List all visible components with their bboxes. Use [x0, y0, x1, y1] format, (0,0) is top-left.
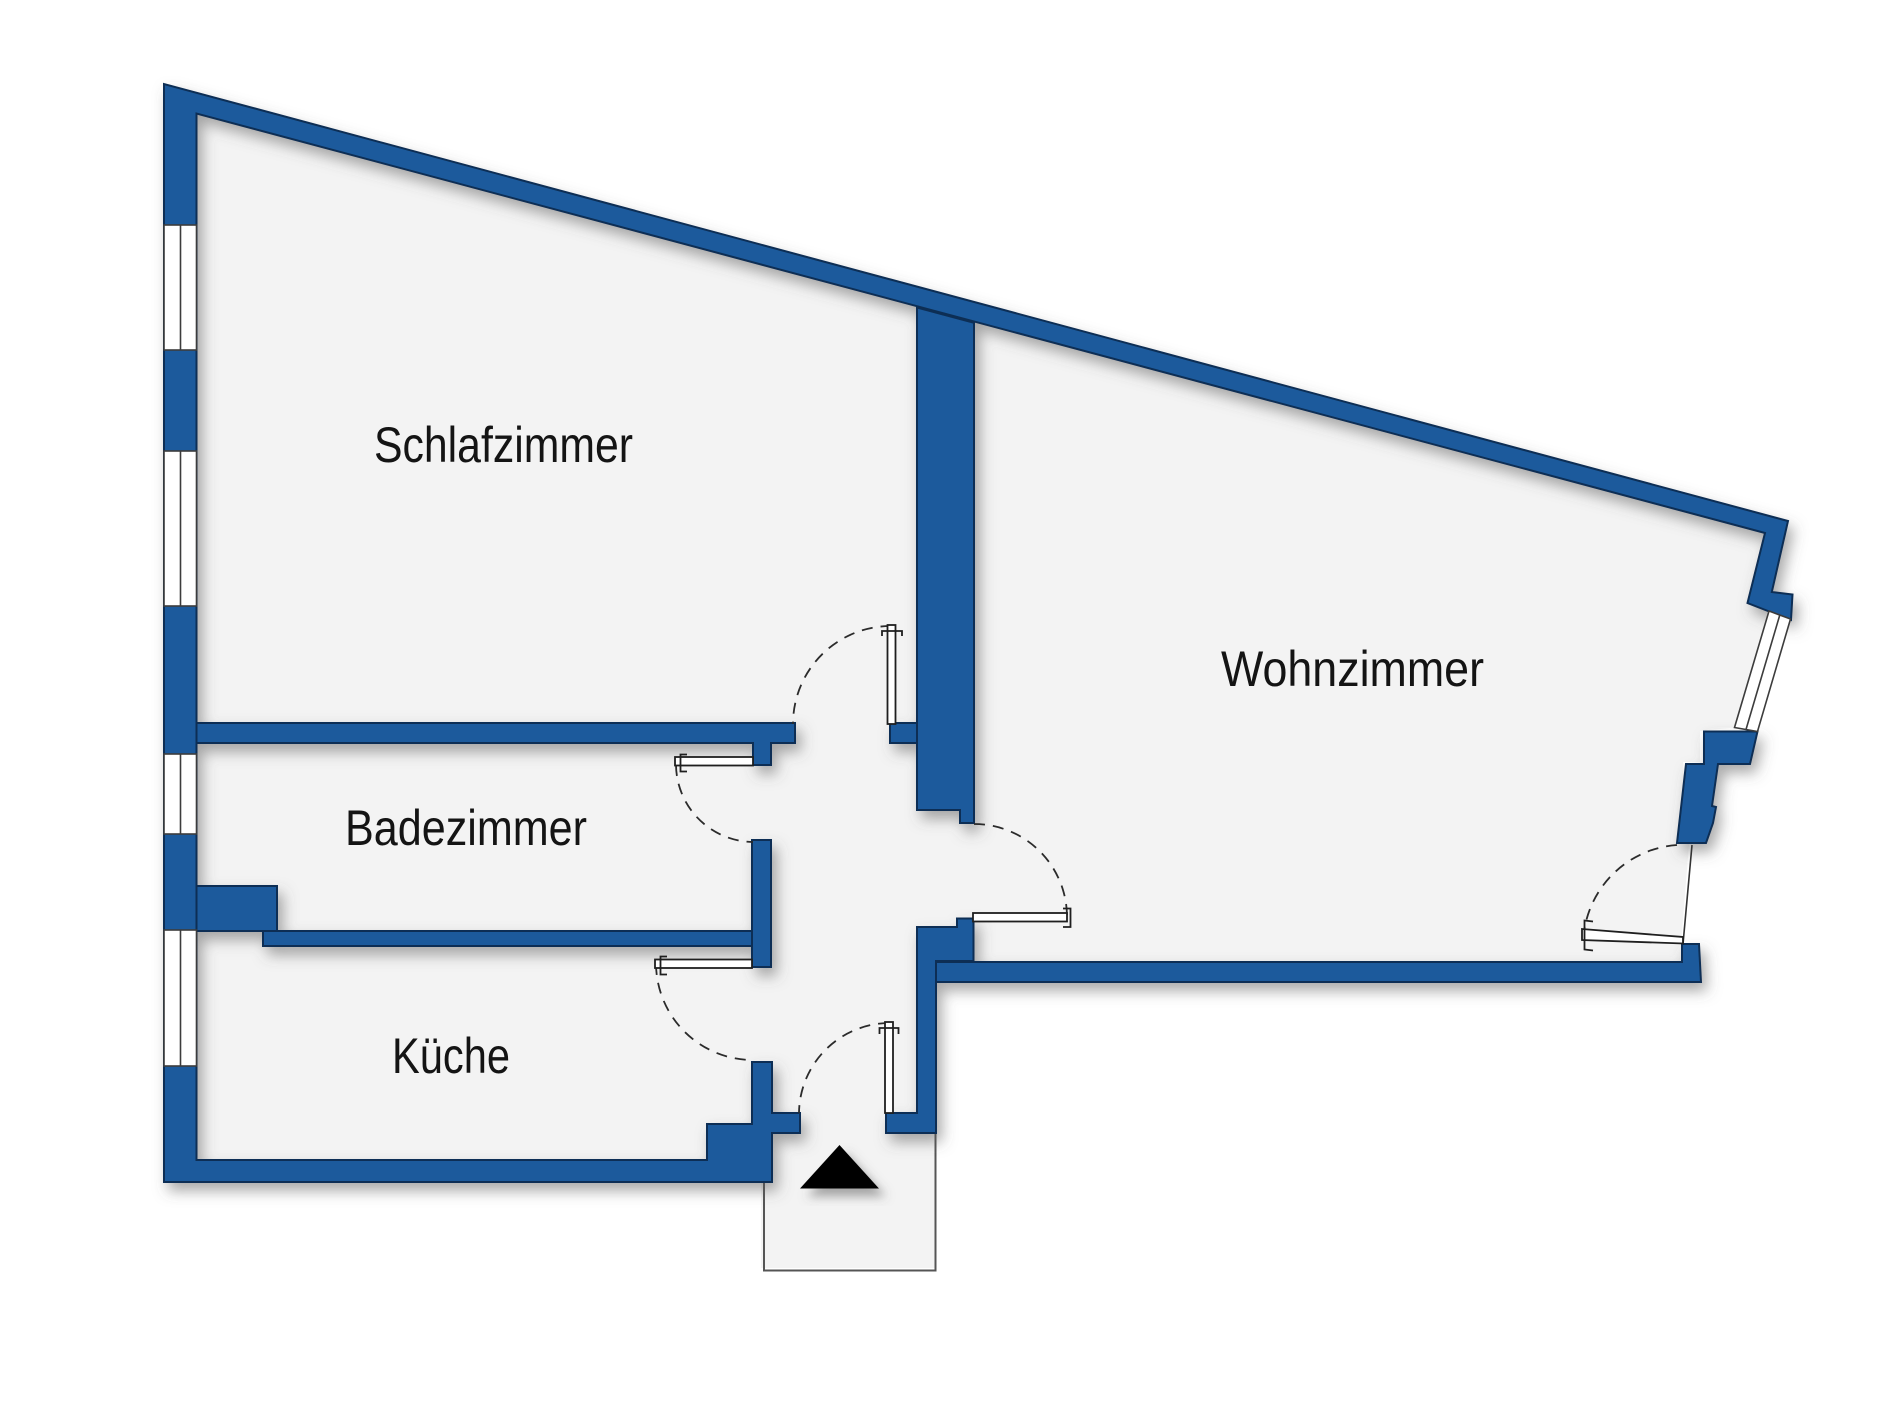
svg-text:Wohnzimmer: Wohnzimmer	[1221, 641, 1484, 697]
svg-text:Schlafzimmer: Schlafzimmer	[374, 417, 633, 473]
svg-text:Küche: Küche	[392, 1028, 510, 1084]
svg-text:Badezimmer: Badezimmer	[345, 800, 587, 856]
